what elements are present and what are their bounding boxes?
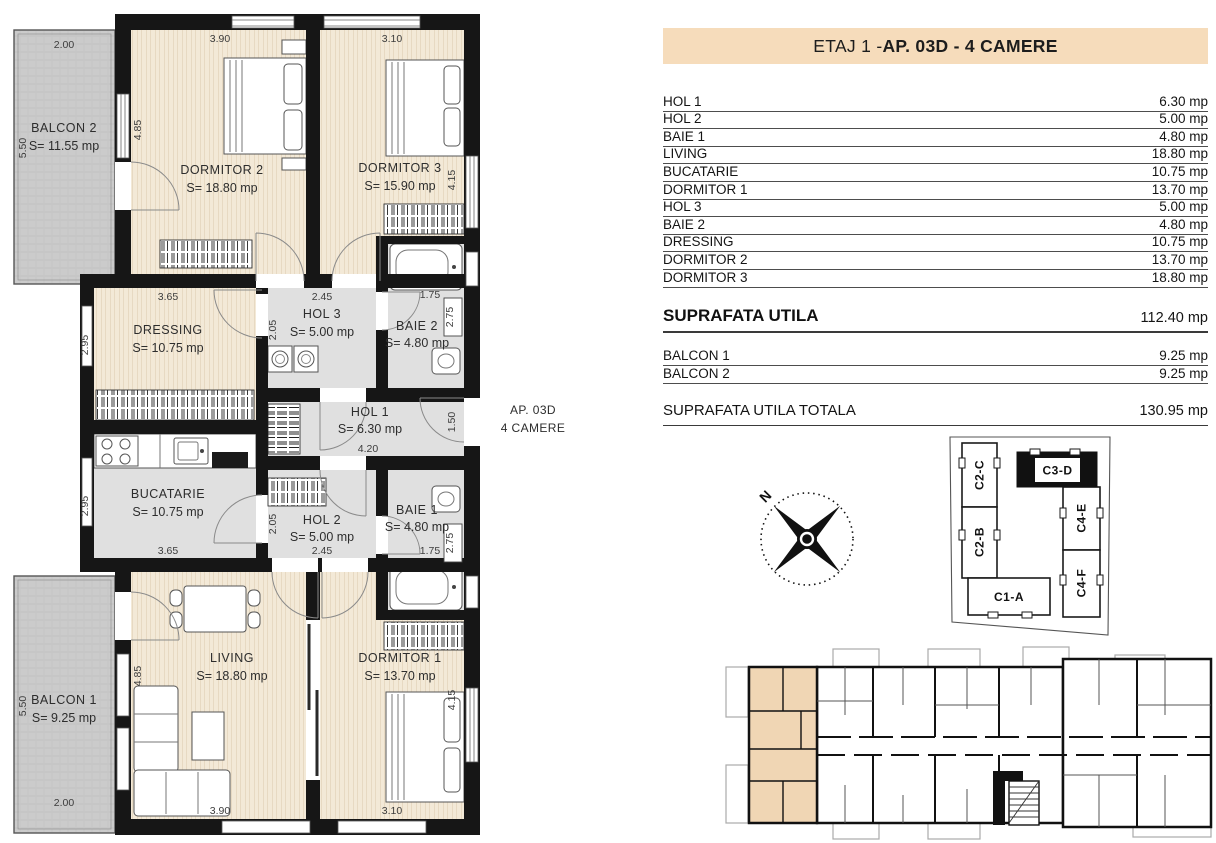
dim-label: 2.05 [267,514,279,535]
room-area: S= 5.00 mp [290,325,354,339]
unit-label: C2-C [973,460,987,490]
room-label: DORMITOR 3 [663,270,748,285]
room-name: BAIE 1 [396,503,438,517]
site-tick [994,530,1000,540]
site-tick [1022,612,1032,618]
area-table-row: HOL 35.00 mp [663,200,1208,218]
area-table-row: BALCON 19.25 mp [663,349,1208,367]
info-panel: ETAJ 1 - AP. 03D - 4 CAMERE HOL 16.30 mp… [663,0,1208,426]
room-area: S= 13.70 mp [364,669,435,683]
site-tick [1070,449,1080,455]
room-area-value: 5.00 mp [1159,111,1208,126]
area-table-row: LIVING18.80 mp [663,147,1208,165]
dim-label: 2.00 [54,39,75,51]
room-area-value: 10.75 mp [1152,234,1208,249]
dim-label: 4.20 [358,443,379,455]
room-area: S= 10.75 mp [132,341,203,355]
dim-label: 4.85 [132,666,144,687]
dim-label: 1.50 [446,412,458,433]
dim-label: 3.10 [382,33,403,45]
north-label: N [756,487,774,505]
dim-label: 5.50 [17,138,29,159]
useful-area-label: SUPRAFATA UTILA [663,306,819,326]
room-name: BAIE 2 [396,319,438,333]
unit-label: C2-B [973,527,987,557]
dim-label: 3.65 [158,545,179,557]
dim-label: 3.90 [210,805,231,817]
dim-label: 2.75 [444,533,456,554]
dim-label: 1.75 [420,289,441,301]
room-label: DRESSING [663,234,734,249]
room-area: S= 5.00 mp [290,530,354,544]
room-area-value: 4.80 mp [1159,129,1208,144]
room-name: DORMITOR 3 [358,161,441,175]
room-area-value: 18.80 mp [1152,146,1208,161]
room-label: DORMITOR 2 [663,252,748,267]
room-name: BALCON 2 [31,121,97,135]
unit-label: C1-A [994,590,1024,604]
areas-table: HOL 16.30 mpHOL 25.00 mpBAIE 14.80 mpLIV… [663,94,1208,288]
room-area: S= 4.80 mp [385,336,449,350]
unit-label: C4-F [1075,569,1089,598]
dim-label: 2.05 [267,320,279,341]
dim-label: 4.15 [446,690,458,711]
unit-label: C4-E [1075,503,1089,532]
area-table-row: DORMITOR 318.80 mp [663,270,1208,288]
room-label: BALCON 1 [663,348,730,363]
unit-label: C3-D [1042,464,1072,478]
room-area: S= 4.80 mp [385,520,449,534]
room-name: HOL 3 [303,307,341,321]
room-area-value: 9.25 mp [1159,348,1208,363]
site-tick [1097,508,1103,518]
site-key-plan: C2-C C3-D C2-B C4-E C4-F C1-A [940,430,1120,642]
room-area-value: 18.80 mp [1152,270,1208,285]
area-table-row: DORMITOR 113.70 mp [663,182,1208,200]
area-table-row: HOL 25.00 mp [663,112,1208,130]
area-table-row: DRESSING10.75 mp [663,235,1208,253]
apartment-floor-plan: BALCON 2 S= 11.55 mp DORMITOR 2 S= 18.80… [0,0,660,843]
room-area: S= 11.55 mp [29,139,99,153]
wardrobe-icon [384,622,464,650]
useful-area-value: 112.40 mp [1141,310,1208,326]
site-tick [1097,575,1103,585]
room-label: LIVING [663,146,707,161]
dim-label: 1.75 [420,545,441,557]
room-label: BAIE 1 [663,129,705,144]
dim-label: 2.95 [79,335,91,356]
area-table-row: BUCATARIE10.75 mp [663,164,1208,182]
shelf-icon [268,404,300,454]
room-name: HOL 1 [351,405,389,419]
dim-label: 3.65 [158,291,179,303]
wardrobe-icon [160,240,252,268]
level-overview-plan [713,645,1216,843]
room-area: S= 18.80 mp [186,181,257,195]
sliding-door [306,620,320,780]
room-area-value: 13.70 mp [1152,252,1208,267]
room-label: HOL 2 [663,111,702,126]
room-area: S= 9.25 mp [32,711,96,725]
room-label: BAIE 2 [663,217,705,232]
sofa-icon [134,686,178,772]
room-name: DRESSING [133,323,202,337]
room-area: S= 10.75 mp [132,505,203,519]
dim-label: 2.75 [444,307,456,328]
room-label: BALCON 2 [663,366,730,381]
compass-rose: N [752,484,862,594]
wardrobe-icon [96,390,254,420]
site-tick [1060,575,1066,585]
room-area: S= 18.80 mp [196,669,267,683]
wardrobe-icon [268,478,326,506]
total-area-row: SUPRAFATA UTILA TOTALA 130.95 mp [663,402,1208,426]
room-area: S= 6.30 mp [338,422,402,436]
site-tick [1030,449,1040,455]
balcony-table: BALCON 19.25 mpBALCON 29.25 mp [663,349,1208,384]
room-label: HOL 3 [663,199,702,214]
room-area-value: 5.00 mp [1159,199,1208,214]
dim-label: 4.85 [132,120,144,141]
site-tick [959,530,965,540]
title-band: ETAJ 1 - AP. 03D - 4 CAMERE [663,28,1208,64]
floor-label: ETAJ 1 - [813,36,882,57]
apartment-annotation: AP. 03D 4 CAMERE [501,403,566,435]
dim-label: 2.00 [54,797,75,809]
area-table-row: BAIE 14.80 mp [663,129,1208,147]
annotation-line2: 4 CAMERE [501,421,566,435]
site-tick [994,458,1000,468]
chair-icon [248,590,260,606]
room-area-value: 4.80 mp [1159,217,1208,232]
area-table-row: HOL 16.30 mp [663,94,1208,112]
room-name: LIVING [210,651,254,665]
dim-label: 2.45 [312,291,333,303]
room-area: S= 15.90 mp [364,179,435,193]
annotation-line1: AP. 03D [510,403,556,417]
floor-plan-sheet: BALCON 2 S= 11.55 mp DORMITOR 2 S= 18.80… [0,0,1216,843]
wardrobe-icon [384,204,464,234]
sink-icon [432,348,460,374]
site-tick [959,458,965,468]
useful-area-row: SUPRAFATA UTILA 112.40 mp [663,306,1208,333]
dim-label: 3.10 [382,805,403,817]
room-area-value: 13.70 mp [1152,182,1208,197]
dim-label: 2.45 [312,545,333,557]
apartment-label: AP. 03D - 4 CAMERE [882,36,1057,57]
room-name: BALCON 1 [31,693,97,707]
dim-label: 3.90 [210,33,231,45]
room-label: BUCATARIE [663,164,738,179]
room-name: BUCATARIE [131,487,205,501]
room-name: DORMITOR 2 [180,163,263,177]
site-tick [988,612,998,618]
balcony-2-floor [14,30,115,284]
room-label: DORMITOR 1 [663,182,748,197]
dim-label: 4.15 [446,170,458,191]
site-tick [1060,508,1066,518]
area-table-row: BAIE 24.80 mp [663,217,1208,235]
appliance-icon [212,452,248,468]
total-area-value: 130.95 mp [1139,403,1208,419]
room-area-value: 10.75 mp [1152,164,1208,179]
area-table-row: DORMITOR 213.70 mp [663,252,1208,270]
total-area-label: SUPRAFATA UTILA TOTALA [663,402,856,419]
coffee-table-icon [192,712,224,760]
chair-icon [170,590,182,606]
chair-icon [248,612,260,628]
dining-table-icon [184,586,246,632]
room-label: HOL 1 [663,94,702,109]
dim-label: 2.95 [79,496,91,517]
area-table-row: BALCON 29.25 mp [663,366,1208,384]
room-name: HOL 2 [303,513,341,527]
room-area-value: 9.25 mp [1159,366,1208,381]
room-area-value: 6.30 mp [1159,94,1208,109]
room-name: DORMITOR 1 [358,651,441,665]
dim-label: 5.50 [17,696,29,717]
